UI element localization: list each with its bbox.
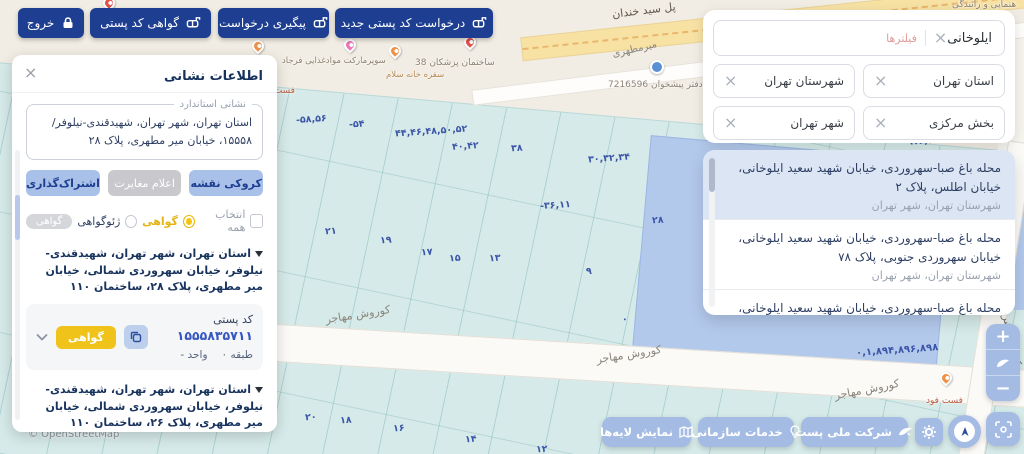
post-company-button[interactable]: شرکت ملی پست bbox=[801, 417, 908, 447]
postal-certificate-label: گواهی کد پستی bbox=[100, 16, 179, 30]
poi-label: ساختمان پزشکان 38 bbox=[415, 58, 495, 68]
results-scrollbar[interactable] bbox=[709, 158, 715, 307]
chip-label: بخش مرکزی bbox=[929, 116, 994, 130]
parcel-number: ۰ bbox=[622, 314, 629, 325]
supermarket-pin[interactable] bbox=[342, 37, 359, 54]
geo-certificate-radio[interactable] bbox=[125, 215, 137, 228]
org-services-label: خدمات سازمانی bbox=[691, 425, 783, 439]
floor-value: طبقه ۰ bbox=[222, 348, 253, 363]
address-panel-header: اطلاعات نشانی × bbox=[12, 55, 277, 93]
zoom-in-button[interactable]: + bbox=[986, 324, 1020, 349]
parcel-number: -۳۶,۱۱ bbox=[540, 199, 571, 212]
parcel-number: ۱۹ bbox=[380, 235, 392, 247]
new-postal-code-request-label: درخواست کد پستی جدید bbox=[341, 16, 465, 30]
chip-province[interactable]: استان تهران × bbox=[863, 64, 1005, 98]
show-layers-label: نمایش لایه‌ها bbox=[600, 425, 673, 439]
remove-chip-icon[interactable]: × bbox=[724, 73, 737, 89]
chip-label: شهر تهران bbox=[790, 116, 844, 130]
settings-button[interactable] bbox=[915, 418, 943, 446]
poi-label: فست فود bbox=[926, 396, 963, 406]
fastfood-pin[interactable] bbox=[250, 38, 267, 55]
certificate-radio-selected[interactable] bbox=[183, 215, 195, 228]
card-actions: گواهی bbox=[36, 325, 148, 349]
scrollbar-thumb[interactable] bbox=[15, 195, 20, 240]
compass-arrow-icon bbox=[954, 421, 975, 442]
result-title: محله باغ صبا-سهروردی، خیابان شهید سعید ا… bbox=[727, 159, 1001, 196]
counter-office-pin[interactable] bbox=[650, 60, 664, 74]
filters-link[interactable]: فیلترها bbox=[886, 32, 917, 45]
zoom-control: + − bbox=[986, 324, 1020, 401]
certificate-badge: گواهی bbox=[26, 214, 72, 229]
divider bbox=[925, 30, 926, 46]
remove-chip-icon[interactable]: × bbox=[874, 115, 887, 131]
parcel-number: ۲۸ bbox=[652, 215, 664, 227]
chip-label: شهرستان تهران bbox=[764, 74, 844, 88]
parcel-number: ۳۸ bbox=[511, 143, 523, 155]
report-discrepancy-button[interactable]: اعلام مغایرت bbox=[108, 170, 182, 196]
post-company-label: شرکت ملی پست bbox=[795, 425, 892, 439]
remove-chip-icon[interactable]: × bbox=[724, 115, 737, 131]
lock-icon bbox=[61, 16, 75, 30]
address-item-text: استان تهران، شهر تهران، شهیدقندی-نیلوفر،… bbox=[45, 383, 263, 429]
collapse-triangle-icon bbox=[255, 387, 263, 393]
mailbox-icon bbox=[472, 16, 487, 30]
dove-icon bbox=[995, 357, 1011, 369]
parcel-number: ۴۰,۴۲ bbox=[452, 140, 480, 153]
standard-address-text: استان تهران، شهر تهران، شهیدقندی-نیلوفر/… bbox=[37, 114, 252, 150]
search-result-item[interactable]: محله باغ صبا-سهروردی، خیابان شهید سعید ا… bbox=[703, 150, 1015, 219]
parcel-number: ۱۲ bbox=[536, 444, 548, 454]
standard-address-label: نشانی استاندارد bbox=[174, 99, 252, 110]
scrollbar-thumb[interactable] bbox=[709, 158, 715, 192]
panel-title: اطلاعات نشانی bbox=[164, 69, 263, 84]
restaurant-pin[interactable] bbox=[387, 43, 404, 60]
logout-label: خروج bbox=[27, 16, 55, 30]
track-request-label: پیگیری درخواست bbox=[219, 16, 306, 30]
show-layers-button[interactable]: نمایش لایه‌ها bbox=[602, 417, 691, 447]
org-services-button[interactable]: خدمات سازمانی bbox=[698, 417, 794, 447]
postal-code-value: ۱۵۵۵۸۳۵۷۱۱ bbox=[177, 328, 253, 343]
parcel-number: ۱۳ bbox=[489, 253, 501, 265]
search-result-item[interactable]: محله باغ صبا-سهروردی، خیابان شهید سعید ا… bbox=[703, 289, 1015, 315]
close-icon[interactable]: × bbox=[24, 63, 37, 82]
result-subtitle: شهرستان تهران، شهر تهران bbox=[727, 269, 1001, 282]
panel-scrollbar[interactable] bbox=[15, 150, 20, 420]
parcel-number: ۱۵ bbox=[449, 253, 461, 265]
search-input[interactable]: ایلوخانی فیلترها × bbox=[713, 20, 1005, 56]
search-result-item[interactable]: محله باغ صبا-سهروردی، خیابان شهید سعید ا… bbox=[703, 219, 1015, 289]
copy-button[interactable] bbox=[124, 325, 148, 349]
capture-frame-icon bbox=[995, 421, 1012, 438]
address-list-item[interactable]: استان تهران، شهر تهران، شهیدقندی-نیلوفر،… bbox=[26, 246, 263, 296]
address-list-item[interactable]: استان تهران، شهر تهران، شهیدقندی-نیلوفر،… bbox=[26, 382, 263, 432]
parcel-number: ۲۰ bbox=[305, 412, 317, 424]
result-title: محله باغ صبا-سهروردی، خیابان شهید سعید ا… bbox=[727, 229, 1001, 266]
clear-search-icon[interactable]: × bbox=[934, 30, 947, 46]
chevron-down-icon[interactable] bbox=[36, 333, 48, 341]
mailbox-icon bbox=[313, 16, 328, 30]
certificate-button[interactable]: گواهی bbox=[56, 326, 116, 349]
parcel-number: ۲۱ bbox=[325, 226, 337, 238]
select-all-label: انتخاب همه bbox=[200, 208, 246, 234]
parcel-number: -۵۴ bbox=[349, 118, 365, 130]
standard-address-fieldset: نشانی استاندارد استان تهران، شهر تهران، … bbox=[26, 99, 263, 160]
certificate-options-row: انتخاب همه گواهی ژئوگواهی گواهی bbox=[26, 208, 263, 234]
parcel-number: -۵۸,۵۶ bbox=[296, 113, 327, 126]
map-sketch-button[interactable]: کروکی نقشه bbox=[189, 170, 263, 196]
postal-code-info: کد پستی ۱۵۵۵۸۳۵۷۱۱ طبقه ۰ واحد - bbox=[154, 312, 253, 363]
poi-label: سوپرمارکت موادغذایی فرجاد bbox=[282, 56, 386, 66]
remove-chip-icon[interactable]: × bbox=[874, 73, 887, 89]
logout-button[interactable]: خروج bbox=[18, 8, 84, 38]
poi-label: هنمایی و رانندگی bbox=[952, 0, 1016, 10]
address-actions: کروکی نقشه اعلام مغایرت اشتراک‌گذاری bbox=[26, 170, 263, 196]
chip-district[interactable]: بخش مرکزی × bbox=[863, 106, 1005, 140]
address-info-panel: اطلاعات نشانی × نشانی استاندارد استان ته… bbox=[12, 55, 277, 432]
postal-map-app: پل سید خندان میرمطهری کوروش مهاجر کوروش … bbox=[0, 0, 1024, 454]
postal-certificate-button[interactable]: گواهی کد پستی bbox=[90, 8, 211, 38]
search-tools: فیلترها × bbox=[886, 30, 947, 46]
parcel-number: ۹ bbox=[586, 266, 593, 277]
copy-icon bbox=[130, 331, 142, 343]
track-request-button[interactable]: پیگیری درخواست bbox=[218, 8, 329, 38]
street-label: پل سید خندان bbox=[611, 0, 676, 21]
tilt-dove-button[interactable] bbox=[986, 349, 1020, 375]
postal-code-label: کد پستی bbox=[213, 313, 253, 326]
new-postal-code-request-button[interactable]: درخواست کد پستی جدید bbox=[335, 8, 493, 38]
mailbox-icon bbox=[186, 16, 201, 30]
search-filter-panel: ایلوخانی فیلترها × استان تهران × شهرستان… bbox=[703, 10, 1015, 143]
select-all-checkbox[interactable] bbox=[250, 214, 263, 228]
result-subtitle: شهرستان تهران، شهر تهران bbox=[727, 199, 1001, 212]
postal-code-card: کد پستی ۱۵۵۵۸۳۵۷۱۱ طبقه ۰ واحد - گواهی bbox=[26, 304, 263, 371]
chip-county[interactable]: شهرستان تهران × bbox=[713, 64, 855, 98]
result-title: محله باغ صبا-سهروردی، خیابان شهید سعید ا… bbox=[727, 299, 1001, 315]
search-query: ایلوخانی bbox=[947, 31, 992, 46]
collapse-triangle-icon bbox=[255, 251, 263, 257]
geo-certificate-label: ژئوگواهی bbox=[77, 215, 120, 228]
zoom-out-button[interactable]: − bbox=[986, 375, 1020, 401]
post-dove-icon bbox=[898, 426, 914, 438]
parcel-number: ۱۶ bbox=[393, 423, 405, 435]
address-item-text: استان تهران، شهر تهران، شهیدقندی-نیلوفر،… bbox=[45, 247, 263, 293]
screenshot-button[interactable] bbox=[986, 412, 1020, 446]
gear-icon bbox=[921, 424, 937, 440]
chip-city[interactable]: شهر تهران × bbox=[713, 106, 855, 140]
parcel-number: ۱۸ bbox=[340, 415, 352, 427]
poi-label: سفره خانه سلام bbox=[386, 70, 444, 80]
poi-label: دفتر پیشخوان 7216596 bbox=[608, 80, 703, 90]
parcel-number: ۱۷ bbox=[421, 247, 433, 259]
certificate-radio-label: گواهی bbox=[142, 215, 178, 228]
locate-button[interactable] bbox=[948, 415, 981, 448]
filter-chips: استان تهران × شهرستان تهران × بخش مرکزی … bbox=[713, 64, 1005, 140]
chip-label: استان تهران bbox=[933, 74, 994, 88]
search-results-dropdown: محله باغ صبا-سهروردی، خیابان شهید سعید ا… bbox=[703, 150, 1015, 315]
share-button[interactable]: اشتراک‌گذاری bbox=[26, 170, 100, 196]
unit-value: واحد - bbox=[180, 348, 207, 363]
parcel-number: ۱۴ bbox=[465, 434, 477, 446]
